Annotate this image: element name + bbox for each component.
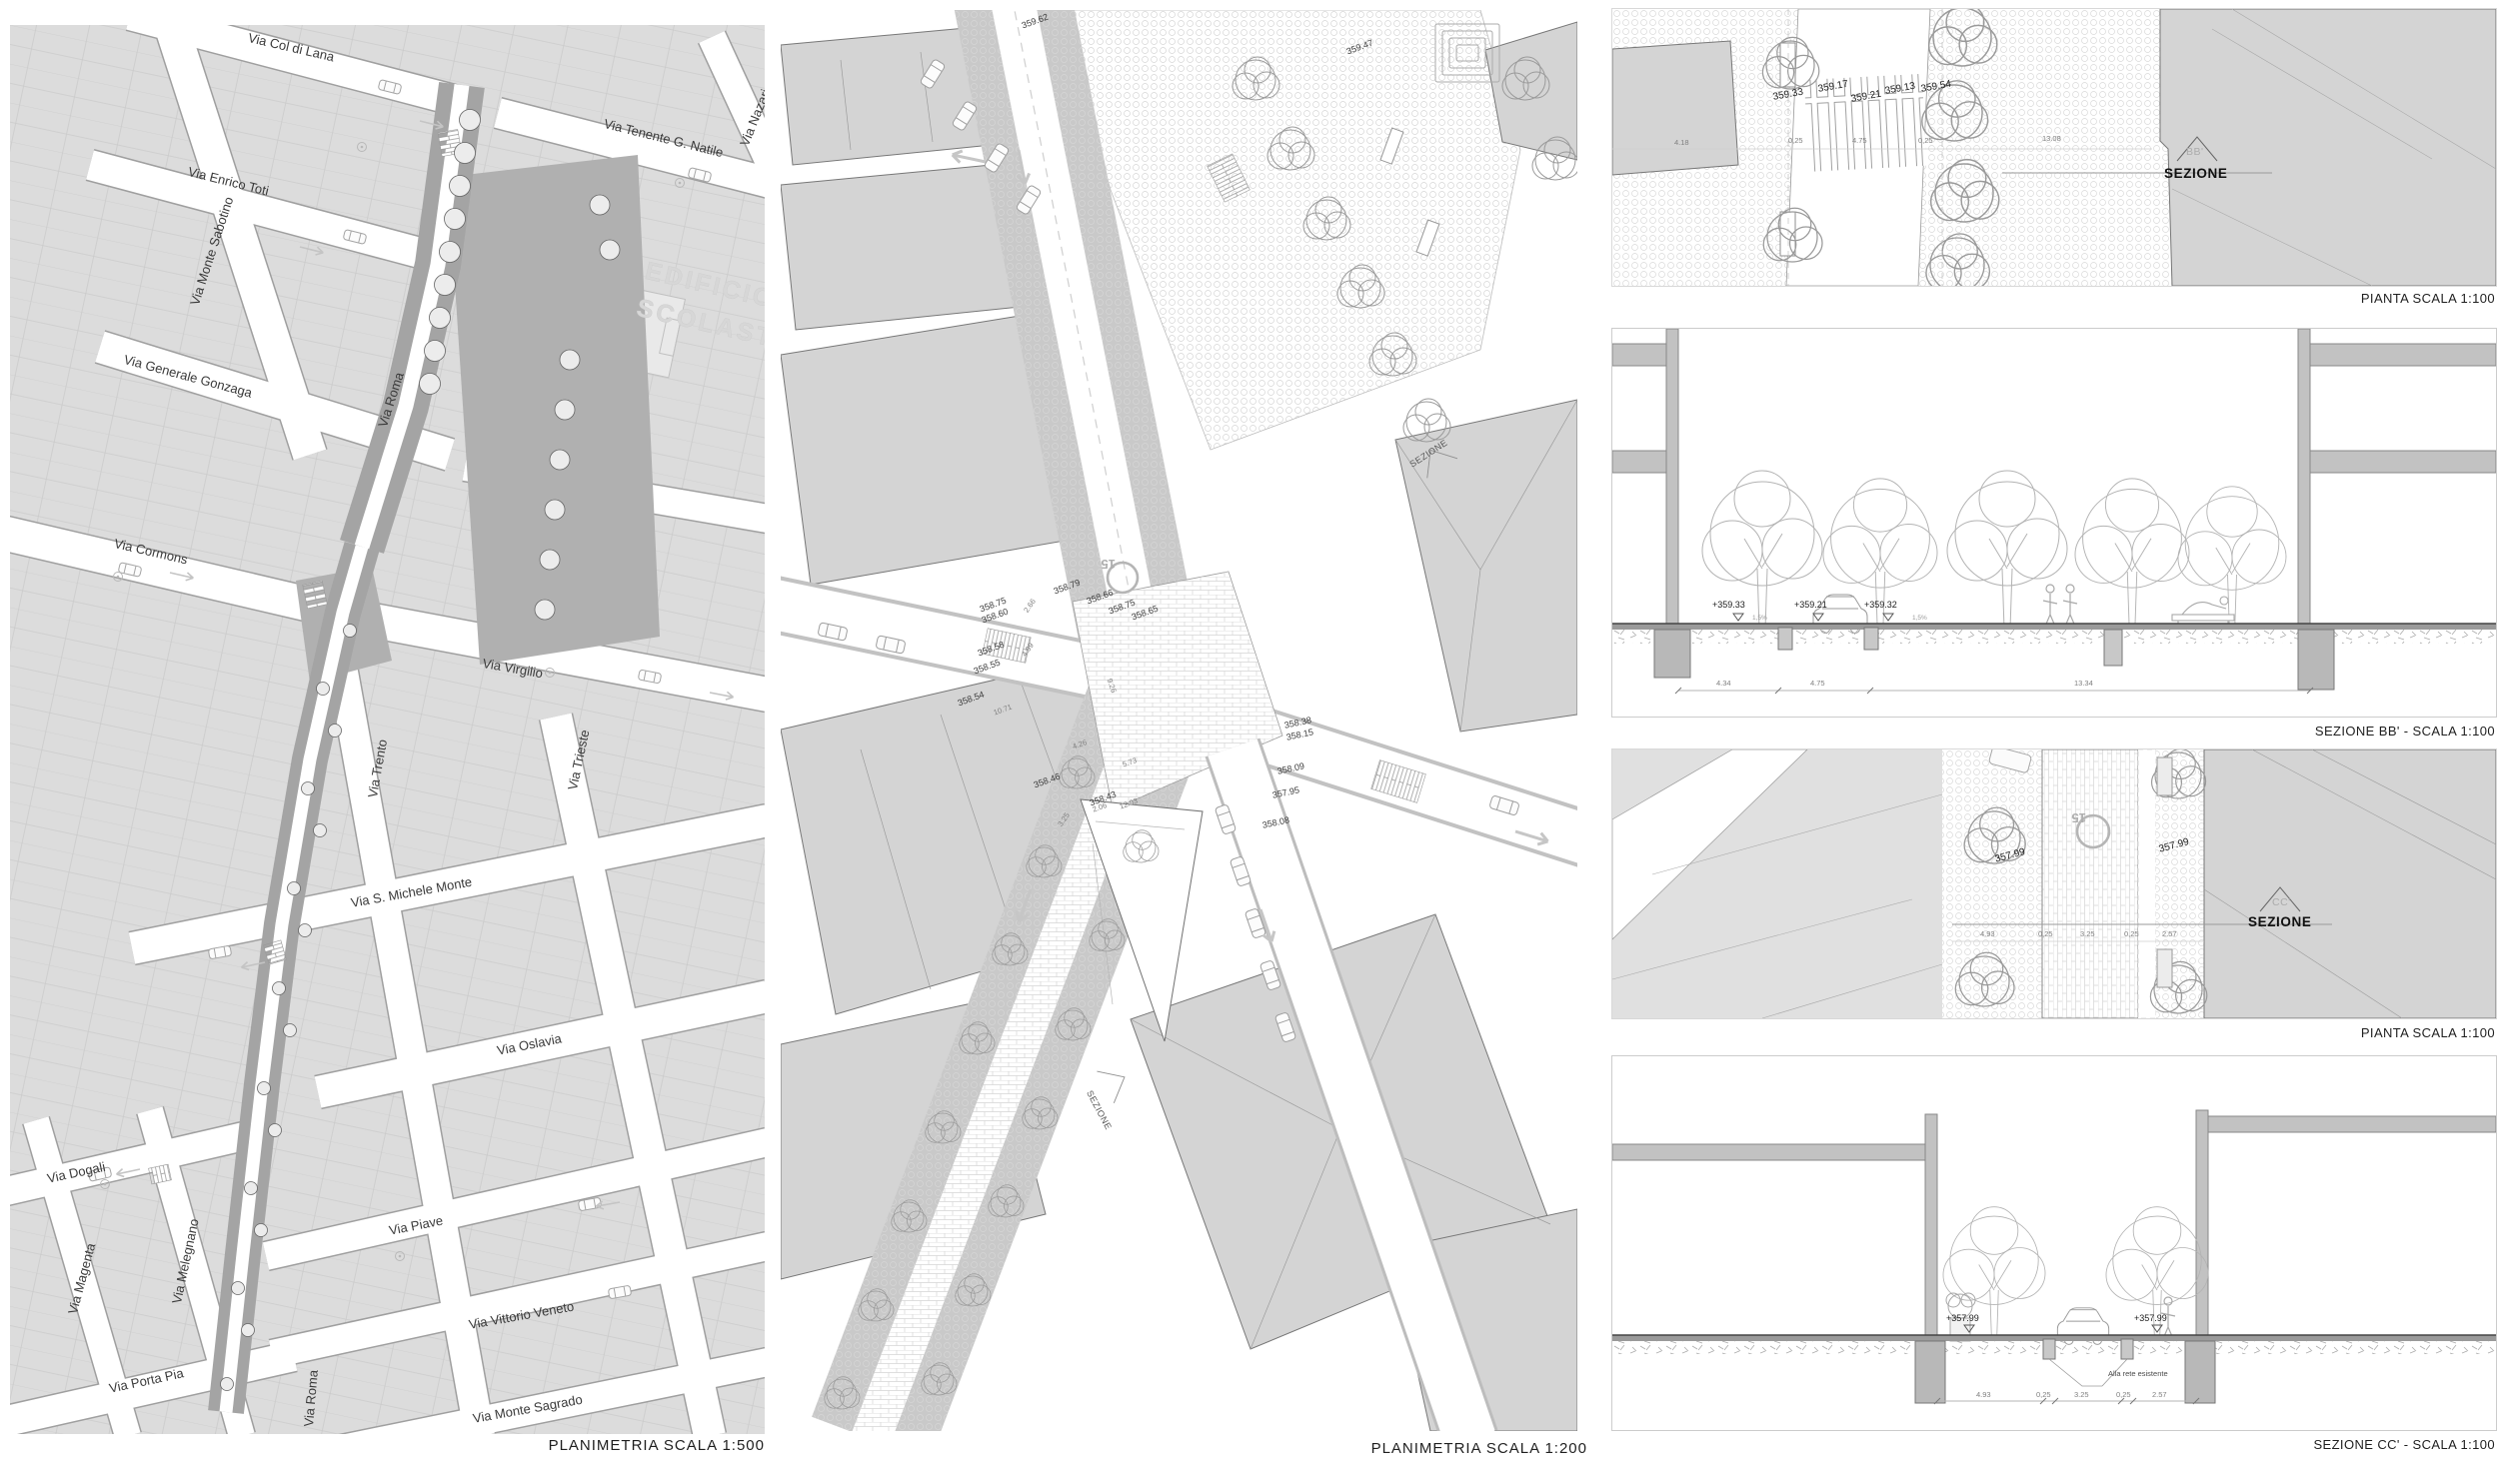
sidewalk-west <box>1942 749 2042 1018</box>
section-label: SEZIONE <box>2248 915 2311 929</box>
panel-sezione-cc: +357.99 +357.99 Alla rete esistente 4.93… <box>1611 1055 2497 1431</box>
section-label: SEZIONE <box>2164 167 2227 181</box>
section-marker-cc: CC' <box>2272 897 2291 908</box>
left-block <box>1612 749 1942 1018</box>
dim-label: 4.18 <box>1674 139 1689 147</box>
roadway <box>2042 749 2138 1018</box>
caption-pianta-cc: PIANTA SCALA 1:100 <box>2135 1025 2495 1040</box>
caption-sezione-cc: SEZIONE CC' - SCALA 1:100 <box>2135 1437 2495 1452</box>
zone-15-badge: 15 <box>2072 811 2086 824</box>
dim-label: 0,25 <box>1918 137 1933 145</box>
sezione-bb-drawing <box>1612 329 2496 717</box>
panel-planimetria-200: 359.62 359.47 358.79 358.66 358.75 358.6… <box>781 10 1577 1431</box>
building-topleft <box>1612 41 1738 175</box>
slope-label: 1,5% <box>1752 616 1767 623</box>
panel-pianta-bb: 359.33 359.17 359.21 359.13 359.54 4.18 … <box>1611 8 2497 287</box>
elevation-label: +357.99 <box>2134 1314 2167 1323</box>
dim-label: 0,25 <box>2038 930 2053 938</box>
drawing-sheet: Via Col di Lana Via Monte Sabotino Via N… <box>0 0 2499 1484</box>
elevation-label: +359.21 <box>1794 601 1827 610</box>
dim-label: 3.25 <box>2080 930 2095 938</box>
elevation-label: +359.32 <box>1864 601 1897 610</box>
dim-label: 2.57 <box>2162 930 2177 938</box>
caption-planimetria-200: PLANIMETRIA SCALA 1:200 <box>1228 1440 1587 1457</box>
dim-label: 0,25 <box>2036 1391 2051 1399</box>
dim-label: 3.25 <box>2074 1391 2089 1399</box>
caption-sezione-bb: SEZIONE BB' - SCALA 1:100 <box>2135 724 2495 739</box>
zone-15-badge: 15 <box>1102 558 1116 571</box>
slope-label: 1,5% <box>1912 616 1927 623</box>
dim-label: 13.34 <box>2074 680 2093 688</box>
panel-pianta-cc: 357.99 357.99 15 4.93 0,25 3.25 0,25 2.5… <box>1611 748 2497 1019</box>
elevation-label: +359.33 <box>1712 601 1745 610</box>
drain-note: Alla rete esistente <box>2108 1370 2168 1378</box>
dim-label: 4.75 <box>1810 680 1825 688</box>
dim-label: 0,25 <box>2124 930 2139 938</box>
dim-label: 0,25 <box>1788 137 1803 145</box>
building-right-cc <box>2204 749 2496 1018</box>
panel-planimetria-500: Via Col di Lana Via Monte Sabotino Via N… <box>10 25 765 1434</box>
panel-sezione-bb: +359.33 +359.21 +359.32 1,5% 1,5% 4.34 4… <box>1611 328 2497 718</box>
dim-label: 4.93 <box>1980 930 1995 938</box>
dim-label: 0,25 <box>2116 1391 2131 1399</box>
dim-label: 4.93 <box>1976 1391 1991 1399</box>
elevation-label: +357.99 <box>1946 1314 1979 1323</box>
pianta-cc-drawing <box>1612 749 2496 1018</box>
caption-planimetria-500: PLANIMETRIA SCALA 1:500 <box>405 1437 765 1454</box>
section-marker-bb: BB' <box>2186 147 2204 158</box>
pianta-bb-drawing <box>1612 9 2496 286</box>
dim-label: 2.57 <box>2152 1391 2167 1399</box>
dim-label: 13.08 <box>2042 135 2061 143</box>
sezione-cc-drawing <box>1612 1056 2496 1430</box>
plan-200-drawing <box>781 10 1577 1431</box>
building-right <box>2160 9 2496 286</box>
dim-label: 4.34 <box>1716 680 1731 688</box>
caption-pianta-bb: PIANTA SCALA 1:100 <box>2135 291 2495 306</box>
dim-label: 4.75 <box>1852 137 1867 145</box>
